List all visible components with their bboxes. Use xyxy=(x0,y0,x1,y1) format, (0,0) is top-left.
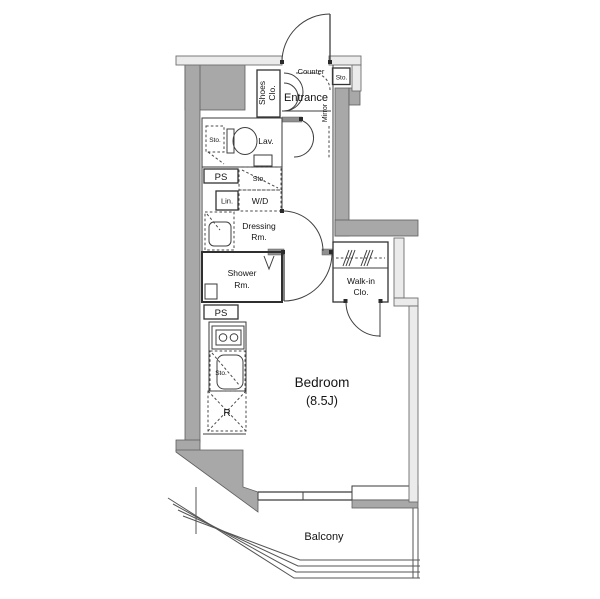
label-storage-wd: Sto. xyxy=(253,176,266,183)
walkin-door-arc xyxy=(346,302,380,336)
label-fridge: R xyxy=(223,408,230,419)
bedroom-door-hinge-left xyxy=(281,250,285,254)
hall-door-arc xyxy=(294,121,314,157)
dressing-door-arc xyxy=(283,211,323,251)
label-lavatory: Lav. xyxy=(258,136,273,146)
wall-top-right-vertical xyxy=(352,65,361,91)
shower-head-symbol xyxy=(264,256,274,269)
lav-sink xyxy=(254,155,272,166)
wall-bottom-left-angled xyxy=(176,450,258,512)
label-walkin-1: Walk-in xyxy=(347,276,375,286)
bedroom-door-arc xyxy=(284,253,332,301)
shower-unit-box xyxy=(205,284,217,299)
floor-plan: Counter Sto. Shoes Clo. Entrance Mirror … xyxy=(0,0,600,599)
balcony-rail-2 xyxy=(173,504,420,572)
wall-right-upper xyxy=(394,238,404,298)
balcony-rail-4 xyxy=(183,516,420,560)
wall-left-step xyxy=(176,440,200,451)
wall-bedroom-top xyxy=(335,220,418,236)
label-shower-1: Shower xyxy=(228,268,257,278)
entrance-hinge-left xyxy=(280,60,284,64)
balcony-rail-3 xyxy=(178,510,420,566)
hall-door-hinge xyxy=(299,117,303,121)
label-balcony: Balcony xyxy=(304,531,344,543)
label-walkin-2: Clo. xyxy=(353,287,368,297)
walkin-opening xyxy=(346,300,379,305)
label-bedroom-size: (8.5J) xyxy=(306,394,338,408)
label-entrance: Entrance xyxy=(284,92,328,104)
wall-bottom-right-band xyxy=(352,486,418,500)
label-mirror: Mirror xyxy=(322,103,329,122)
label-dressing-1: Dressing xyxy=(242,221,276,231)
wall-right-lower xyxy=(409,306,418,502)
label-kitchen-storage: Sto. xyxy=(215,370,227,377)
entrance-door-arc xyxy=(282,14,330,62)
label-ps-lower: PS xyxy=(215,308,228,319)
walkin-door-jamb-left xyxy=(344,299,348,303)
label-shower-2: Rm. xyxy=(234,280,250,290)
label-lav-storage: Sto. xyxy=(209,137,221,144)
label-dressing-2: Rm. xyxy=(251,232,267,242)
bedroom-door xyxy=(281,250,333,301)
label-shoes-closet-2: Clo. xyxy=(267,85,277,100)
label-bedroom-name: Bedroom xyxy=(295,375,350,390)
vanity-basin xyxy=(209,222,231,246)
label-storage-top: Sto. xyxy=(336,75,348,82)
label-washer-dryer: W/D xyxy=(252,196,269,206)
wall-hall-right xyxy=(335,88,349,236)
label-counter: Counter xyxy=(298,67,325,76)
wall-bottom-right xyxy=(352,500,418,508)
label-linen: Lin. xyxy=(221,197,233,206)
wall-top-band-left xyxy=(176,56,282,65)
wall-right-step xyxy=(394,298,418,306)
dressing-door-hinge xyxy=(280,209,284,213)
wall-top-band-right xyxy=(329,56,361,65)
entrance-hinge-right xyxy=(328,60,332,64)
label-shoes-closet-1: Shoes xyxy=(257,81,267,105)
label-ps-upper: PS xyxy=(215,172,228,183)
floor-plan-canvas: Counter Sto. Shoes Clo. Entrance Mirror … xyxy=(0,0,600,599)
wall-left xyxy=(185,62,200,442)
